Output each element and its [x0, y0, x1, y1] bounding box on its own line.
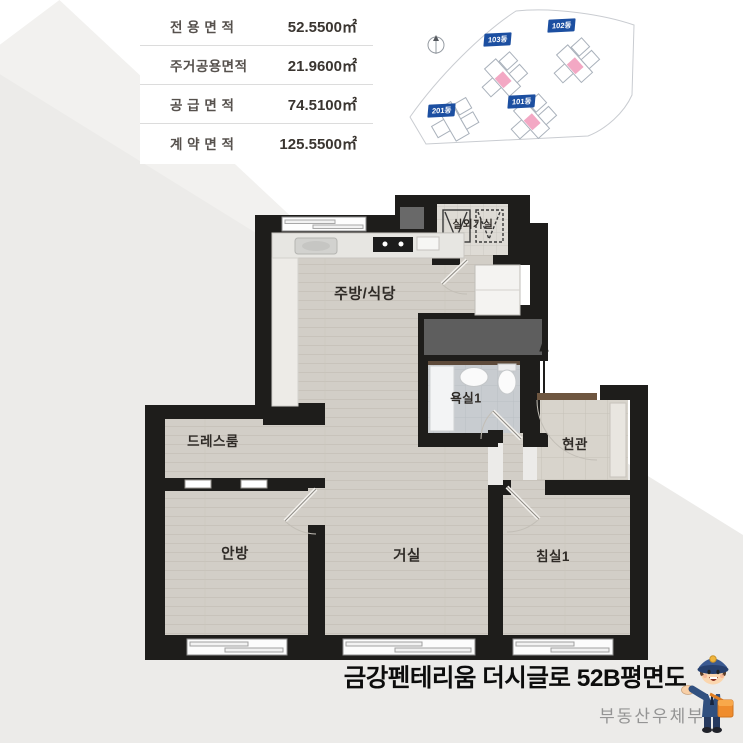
floors-layer	[165, 204, 630, 635]
area-value: 21.9600㎡	[288, 55, 357, 76]
kitchen-cabinets	[272, 258, 298, 406]
table-row: 공 급 면 적 74.5100㎡	[140, 85, 373, 124]
shoe-cabinet	[610, 403, 626, 477]
site-plan-svg	[400, 5, 645, 155]
entrance-door	[537, 393, 597, 400]
area-label: 전 용 면 적	[170, 16, 234, 36]
room-label-master: 안방	[221, 543, 249, 564]
table-row: 전 용 면 적 52.5500㎡	[140, 7, 373, 46]
area-table: 전 용 면 적 52.5500㎡ 주거공용면적 21.9600㎡ 공 급 면 적…	[140, 7, 373, 164]
page-title: 금강펜테리움 더시글로 52B평면도	[340, 659, 690, 694]
area-label: 계 약 면 적	[170, 133, 234, 153]
table-row: 계 약 면 적 125.5500㎡	[140, 124, 373, 162]
building-label-101: 101동	[507, 94, 536, 108]
floor-plan-page: 전 용 면 적 52.5500㎡ 주거공용면적 21.9600㎡ 공 급 면 적…	[0, 0, 743, 743]
bath-sink-icon	[460, 368, 488, 387]
room-label-dressroom: 드레스룸	[187, 430, 239, 450]
toilet-icon	[498, 370, 516, 394]
table-row: 주거공용면적 21.9600㎡	[140, 46, 373, 85]
room-label-entrance: 현관	[562, 433, 588, 453]
corridor-arrow-icon	[540, 339, 548, 393]
room-label-kitchen: 주방/식당	[334, 283, 396, 304]
cooktop-icon	[373, 237, 413, 252]
room-label-outdoor-unit: 실외기실	[453, 217, 494, 232]
room-label-bathroom: 욕실1	[450, 388, 481, 407]
building-label-201: 201동	[427, 103, 456, 117]
floor-plan: 실외기실 주방/식당 욕실1 현관 드레스룸 안방 거실 침실1	[145, 193, 648, 660]
building-label-102: 102동	[547, 18, 576, 32]
building-102	[546, 35, 603, 92]
postman-mascot-icon	[680, 644, 743, 736]
area-value: 74.5100㎡	[288, 94, 357, 115]
kitchen-counter	[272, 233, 464, 258]
area-value: 52.5500㎡	[288, 16, 357, 37]
building-201	[426, 94, 483, 148]
area-value: 125.5500㎡	[279, 133, 357, 154]
site-plan: 103동 102동 201동 101동	[400, 5, 645, 155]
duct-shaft	[400, 207, 424, 229]
area-label: 공 급 면 적	[170, 94, 234, 114]
sliding-door	[241, 480, 267, 488]
area-label: 주거공용면적	[170, 55, 248, 75]
sliding-door	[185, 480, 211, 488]
building-label-103: 103동	[483, 32, 512, 46]
compass-icon	[428, 35, 444, 54]
room-label-bedroom1: 침실1	[536, 545, 570, 565]
room-label-living: 거실	[393, 545, 421, 566]
storage-closet	[424, 319, 542, 355]
floor-plan-svg	[145, 193, 648, 660]
